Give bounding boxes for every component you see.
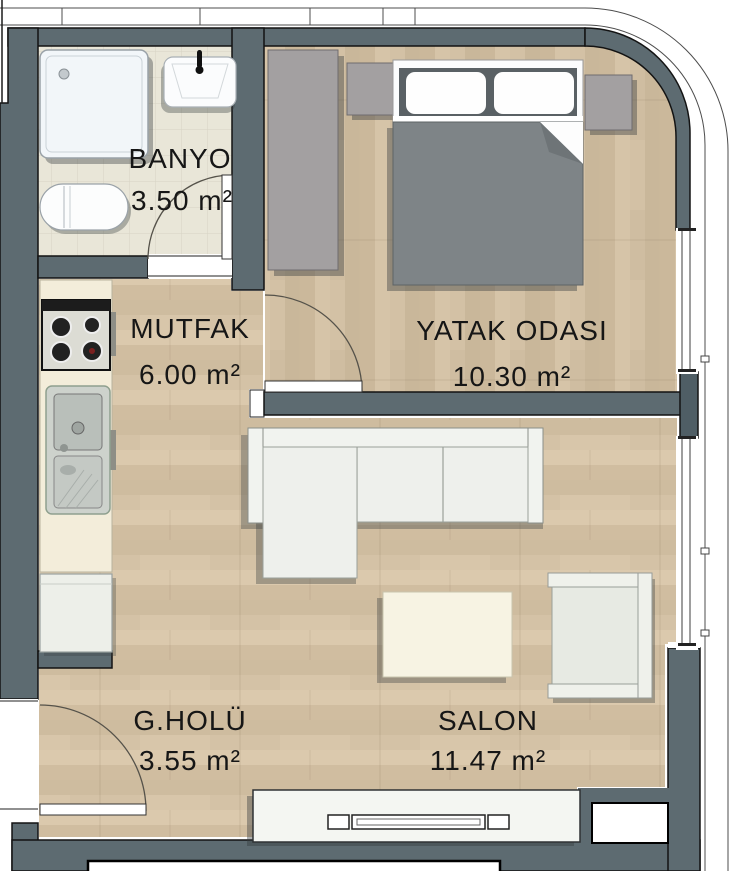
bed-pillow bbox=[406, 72, 486, 114]
floor-plan: BANYO 3.50 m² MUTFAK 6.00 m² YATAK ODASI… bbox=[0, 0, 731, 871]
bed-pillow bbox=[494, 72, 574, 114]
bed bbox=[387, 60, 583, 291]
tv-speaker bbox=[488, 815, 509, 829]
sofa-arm bbox=[528, 428, 543, 523]
bedroom-area: 10.30 m² bbox=[453, 361, 572, 392]
wall-bath-bottom bbox=[38, 256, 148, 278]
armchair-back bbox=[638, 573, 652, 698]
coffee-table bbox=[383, 592, 512, 677]
armchair-seat bbox=[552, 587, 638, 684]
wall-top bbox=[8, 28, 585, 46]
counter-handle bbox=[110, 430, 116, 470]
shaft-opening bbox=[592, 803, 668, 843]
toilet bbox=[40, 184, 128, 230]
armchair-arm bbox=[548, 684, 650, 698]
wall-pier-right bbox=[680, 372, 698, 438]
facade-panel bbox=[62, 8, 200, 25]
nightstand-right bbox=[585, 75, 632, 130]
tv-speaker bbox=[328, 815, 349, 829]
bedroom-door-leaf bbox=[265, 381, 362, 392]
sofa-chaise bbox=[263, 447, 357, 578]
sink-faucet bbox=[197, 50, 202, 68]
fridge bbox=[40, 574, 112, 652]
wall-bath-bedroom bbox=[232, 28, 264, 290]
bedroom-window bbox=[676, 228, 698, 374]
shower-tray bbox=[40, 50, 148, 158]
sofa-back bbox=[248, 428, 543, 448]
entry-door-sill bbox=[0, 699, 38, 811]
wall-bedroom-salon bbox=[264, 392, 682, 415]
armchair-arm bbox=[548, 573, 650, 587]
kitchen-label: MUTFAK bbox=[130, 313, 250, 344]
salon-area: 11.47 m² bbox=[430, 745, 546, 776]
windows bbox=[676, 228, 698, 650]
wardrobe bbox=[268, 50, 338, 270]
hall-label: G.HOLÜ bbox=[133, 705, 246, 736]
wall-right-lower bbox=[668, 648, 700, 871]
tv-unit bbox=[247, 790, 580, 846]
bathroom-door-sill bbox=[148, 254, 232, 278]
wall-divider-cap bbox=[250, 390, 264, 417]
armchair bbox=[548, 573, 655, 703]
salon-label: SALON bbox=[438, 705, 538, 736]
wall-left bbox=[0, 28, 38, 699]
shower-drain bbox=[59, 69, 69, 79]
sofa-arm bbox=[248, 428, 263, 523]
bedroom-furniture bbox=[268, 50, 637, 291]
facade-panel bbox=[310, 8, 383, 25]
salon-window bbox=[676, 436, 698, 650]
kitchen-area: 6.00 m² bbox=[139, 359, 241, 390]
kitchen-fixtures bbox=[40, 280, 116, 656]
nightstand-left bbox=[347, 63, 393, 115]
entry-door-leaf bbox=[40, 804, 146, 815]
hall-area: 3.55 m² bbox=[139, 745, 241, 776]
neighbor-unit-outline bbox=[88, 861, 500, 871]
bathroom-area: 3.50 m² bbox=[131, 185, 233, 216]
floor-plan-drawing: BANYO 3.50 m² MUTFAK 6.00 m² YATAK ODASI… bbox=[0, 0, 731, 871]
bedroom-label: YATAK ODASI bbox=[416, 315, 607, 346]
bathroom-label: BANYO bbox=[128, 143, 231, 174]
